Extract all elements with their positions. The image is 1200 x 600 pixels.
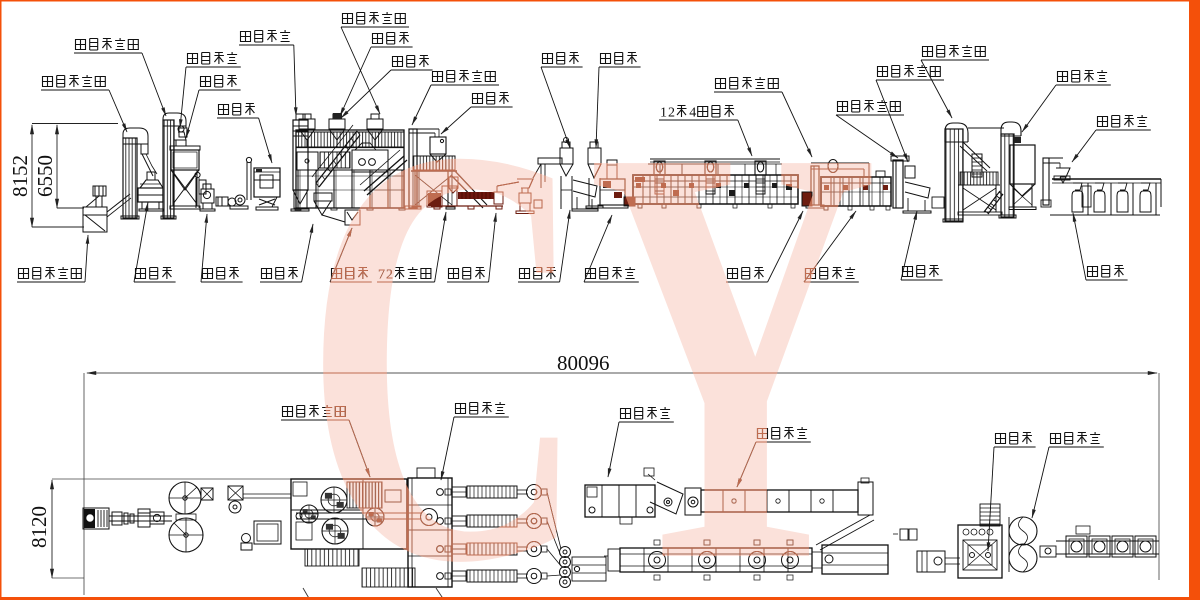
svg-text:8152: 8152 <box>8 155 32 197</box>
svg-text:8120: 8120 <box>27 506 51 548</box>
svg-text:6550: 6550 <box>33 155 57 197</box>
